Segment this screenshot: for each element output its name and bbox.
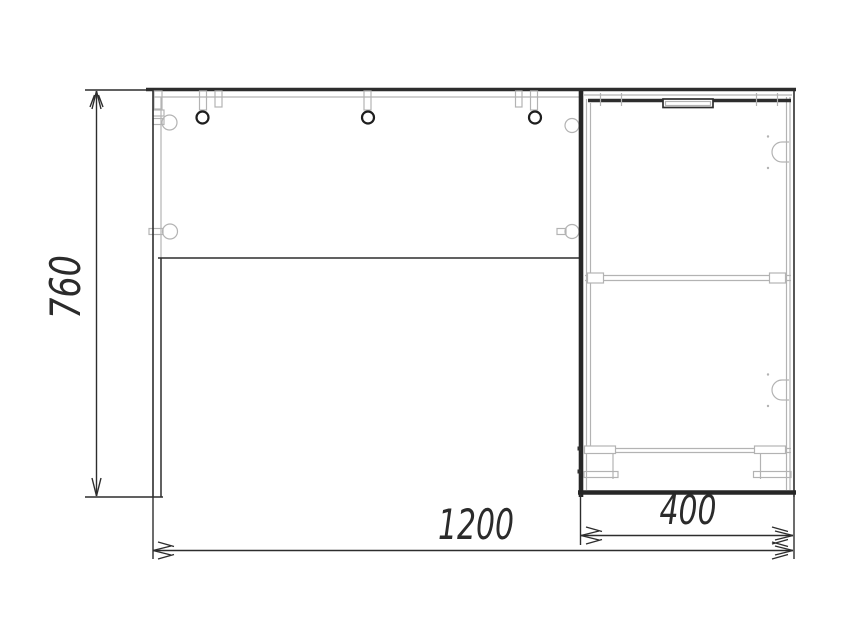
technical-drawing-page: 760 1200 400	[0, 0, 856, 642]
dowel-fittings	[153, 91, 538, 125]
desktop-panel	[146, 90, 796, 98]
dimension-height: 760	[41, 90, 163, 497]
cabinet-bottom-shelf	[584, 446, 791, 479]
dimension-1200-label: 1200	[438, 500, 514, 549]
hinge-cup-top	[767, 135, 789, 169]
cabinet-door-handle	[663, 99, 713, 108]
screw-heads	[197, 112, 542, 124]
cabinet	[578, 88, 797, 497]
cam-lock-fittings	[149, 115, 579, 239]
dimension-760-label: 760	[41, 255, 90, 319]
dimension-400-label: 400	[660, 488, 717, 534]
technical-drawing-canvas: 760 1200 400	[0, 0, 856, 642]
hinge-cup-bottom	[767, 373, 789, 407]
cabinet-middle-shelf	[585, 273, 791, 283]
left-side-panel	[153, 88, 161, 497]
dimension-cabinet-width: 400	[581, 488, 794, 545]
